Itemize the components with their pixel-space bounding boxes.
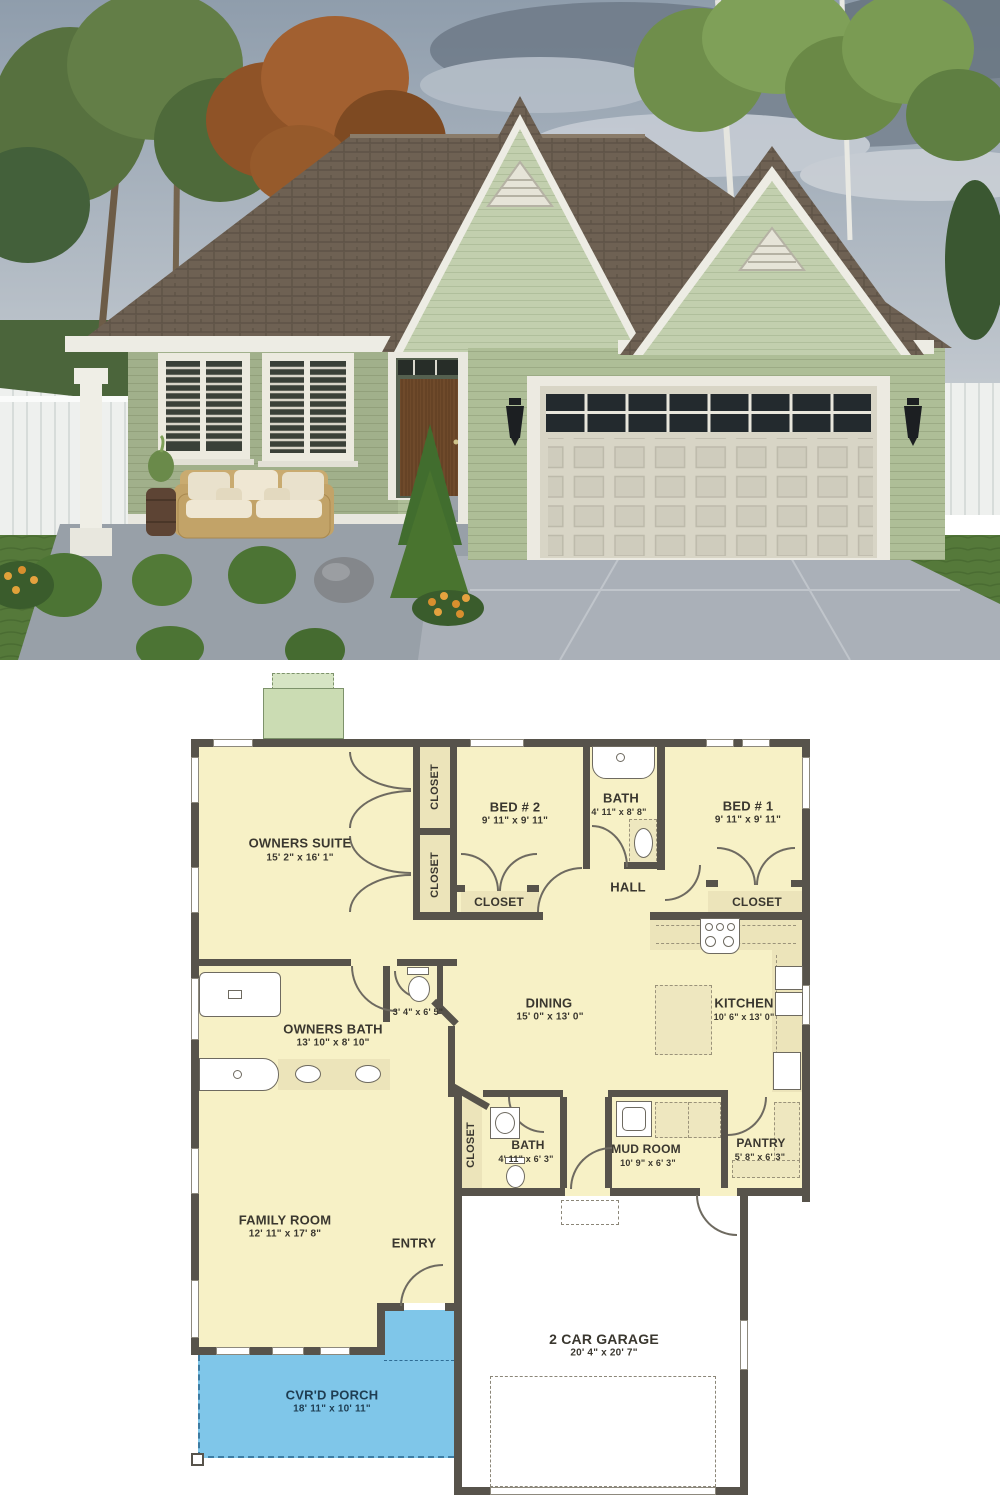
window-opening [191, 1148, 199, 1194]
stoop-step-line [384, 1360, 454, 1362]
room-dims-dining: 15' 0" x 13' 0" [516, 1012, 583, 1023]
room-label-mud-room: MUD ROOM [611, 1142, 681, 1156]
room-label-entry: ENTRY [392, 1236, 437, 1251]
wall [740, 1195, 748, 1320]
burner-icon [705, 923, 713, 931]
room-label-hall-closet: CLOSET [465, 1122, 477, 1168]
burner-icon [705, 936, 716, 947]
room-dims-pantry: 5' 8" x 6' 3" [735, 1152, 785, 1162]
room-label-dining: DINING [526, 996, 573, 1011]
window-opening [470, 739, 524, 747]
wc-toilet-icon [408, 976, 430, 1002]
wall [377, 1310, 385, 1355]
house-exterior-photo [0, 0, 1000, 660]
shower-drain-icon [616, 753, 625, 762]
wall [560, 1097, 567, 1188]
room-label-bed1: BED # 1 [723, 799, 774, 814]
room-label-porch: CVR'D PORCH [286, 1388, 379, 1403]
garage-step [561, 1200, 619, 1225]
room-label-hall: HALL [610, 880, 645, 895]
room-dims-garage: 20' 4" x 20' 7" [570, 1348, 637, 1359]
wall [740, 1370, 748, 1495]
room-label-closet: CLOSET [429, 764, 441, 810]
room-dims-bath: 4' 11" x 8' 8" [591, 807, 646, 817]
window-opening [191, 978, 199, 1040]
bath2-sink-bowl-icon [495, 1112, 515, 1134]
garage-door-opening [490, 1487, 716, 1495]
bath-sink-icon [634, 828, 653, 858]
fence-left-rail [0, 396, 128, 402]
wall [413, 912, 543, 920]
bath2-toilet-icon [506, 1165, 525, 1188]
room-label-bath2: BATH [511, 1138, 544, 1152]
wall [716, 1487, 748, 1495]
wall [608, 1090, 728, 1097]
tub-soap-icon [228, 990, 242, 999]
window-opening [213, 739, 253, 747]
porch-sofa [174, 470, 334, 538]
kitchen-island [655, 985, 712, 1055]
room-label-owners-suite: OWNERS SUITE [249, 836, 352, 851]
owners-sink-icon [295, 1065, 321, 1083]
kitchen-sink-icon [775, 966, 803, 990]
room-dims-family-room: 12' 11" x 17' 8" [249, 1229, 322, 1240]
window-right [258, 353, 358, 467]
room-label-owners-bath: OWNERS BATH [283, 1022, 382, 1037]
window-opening [802, 757, 810, 809]
window-opening [191, 1280, 199, 1338]
wall [583, 739, 590, 869]
patio [263, 688, 344, 739]
wall [610, 1188, 700, 1196]
window-opening [191, 867, 199, 913]
wall [397, 959, 457, 966]
room-label-closet: CLOSET [429, 852, 441, 898]
room-label-kitchen: KITCHEN [714, 996, 773, 1011]
window-opening [191, 757, 199, 803]
wall [191, 739, 199, 1355]
porch-post-symbol [191, 1453, 204, 1466]
door-handle [454, 440, 459, 445]
driveway [418, 556, 1000, 660]
window-opening [742, 739, 770, 747]
door-opening-kitchen [802, 985, 810, 1025]
room-dims-mud-room: 10' 9" x 6' 3" [620, 1158, 676, 1168]
floor-plan: OWNERS SUITE 15' 2" x 16' 1" CLOSET CLOS… [0, 660, 1000, 1500]
room-label-bath: BATH [603, 791, 639, 806]
fence-left [0, 388, 128, 540]
owners-sink-icon [355, 1065, 381, 1083]
room-label-bed2-closet: CLOSET [474, 895, 524, 909]
kitchen-sink-icon [775, 992, 803, 1016]
garage-door-dashed [490, 1376, 716, 1487]
burner-icon [716, 923, 724, 931]
pantry-shelves-bottom [732, 1160, 800, 1178]
room-dims-owners-bath: 13' 10" x 8' 10" [296, 1038, 369, 1049]
room-dims-porch: 18' 11" x 10' 11" [293, 1404, 371, 1415]
window-opening [320, 1347, 350, 1355]
wc-toilet-tank-icon [407, 967, 429, 975]
room-dims-bed2: 9' 11" x 9' 11" [482, 816, 548, 827]
garage-door-panels [548, 438, 873, 556]
window-left [154, 353, 254, 465]
garage-door [527, 376, 890, 560]
room-dims-kitchen: 10' 6" x 13' 0" [714, 1012, 775, 1022]
wall [721, 1097, 728, 1188]
burner-icon [727, 923, 735, 931]
room-dims-bed1: 9' 11" x 9' 11" [715, 815, 781, 826]
window-opening [216, 1347, 250, 1355]
entry-stoop-fill [384, 1310, 454, 1362]
room-label-family-room: FAMILY ROOM [239, 1213, 332, 1228]
wall [454, 1487, 490, 1495]
room-label-garage: 2 CAR GARAGE [549, 1331, 659, 1347]
wall [191, 959, 351, 966]
wall [413, 828, 457, 835]
fridge-icon [773, 1052, 801, 1090]
window-opening [706, 739, 734, 747]
pin-image: OWNERS SUITE 15' 2" x 16' 1" CLOSET CLOS… [0, 0, 1000, 1500]
vanity-drain-icon [233, 1070, 242, 1079]
garage-side-door [740, 1320, 748, 1370]
room-label-bed1-closet: CLOSET [732, 895, 782, 909]
wall [454, 1188, 565, 1196]
shower-icon [592, 746, 655, 779]
room-dims-wc: 3' 4" x 6' 5" [393, 1007, 443, 1017]
boulder [314, 557, 374, 603]
room-label-bed2: BED # 2 [490, 800, 541, 815]
mud-sink-basin-icon [622, 1107, 646, 1131]
wall [483, 1090, 563, 1097]
wall [657, 739, 665, 870]
wall [454, 1090, 462, 1495]
burner-icon [723, 936, 734, 947]
room-dims-owners-suite: 15' 2" x 16' 1" [266, 853, 333, 864]
window-opening [272, 1347, 304, 1355]
room-dims-bath2: 4' 11" x 6' 3" [498, 1154, 553, 1164]
room-label-pantry: PANTRY [736, 1136, 785, 1150]
mud-room-cubby-divider [688, 1102, 689, 1138]
